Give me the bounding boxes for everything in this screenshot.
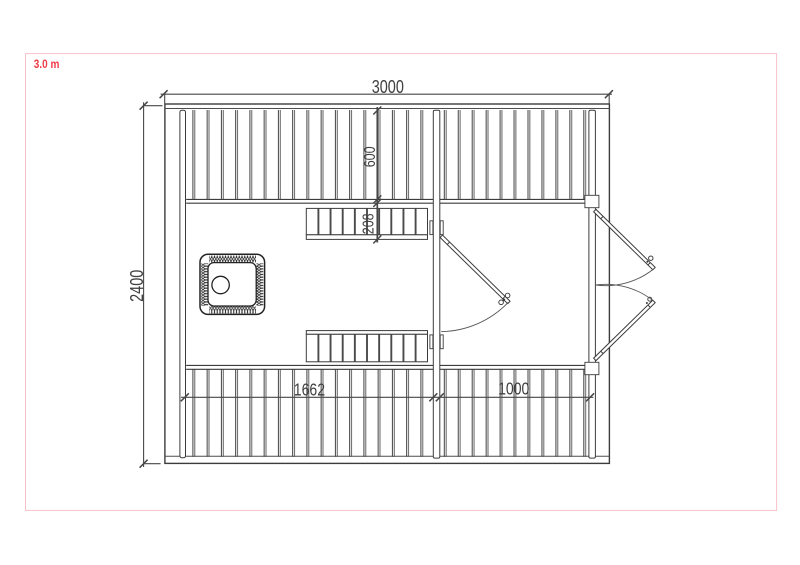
svg-text:3.0 m: 3.0 m <box>34 58 60 71</box>
svg-text:1662: 1662 <box>294 380 325 400</box>
svg-text:600: 600 <box>361 146 379 167</box>
svg-text:1000: 1000 <box>498 379 529 399</box>
svg-text:208: 208 <box>360 213 378 234</box>
svg-text:2400: 2400 <box>126 270 147 302</box>
svg-text:3000: 3000 <box>372 76 404 97</box>
